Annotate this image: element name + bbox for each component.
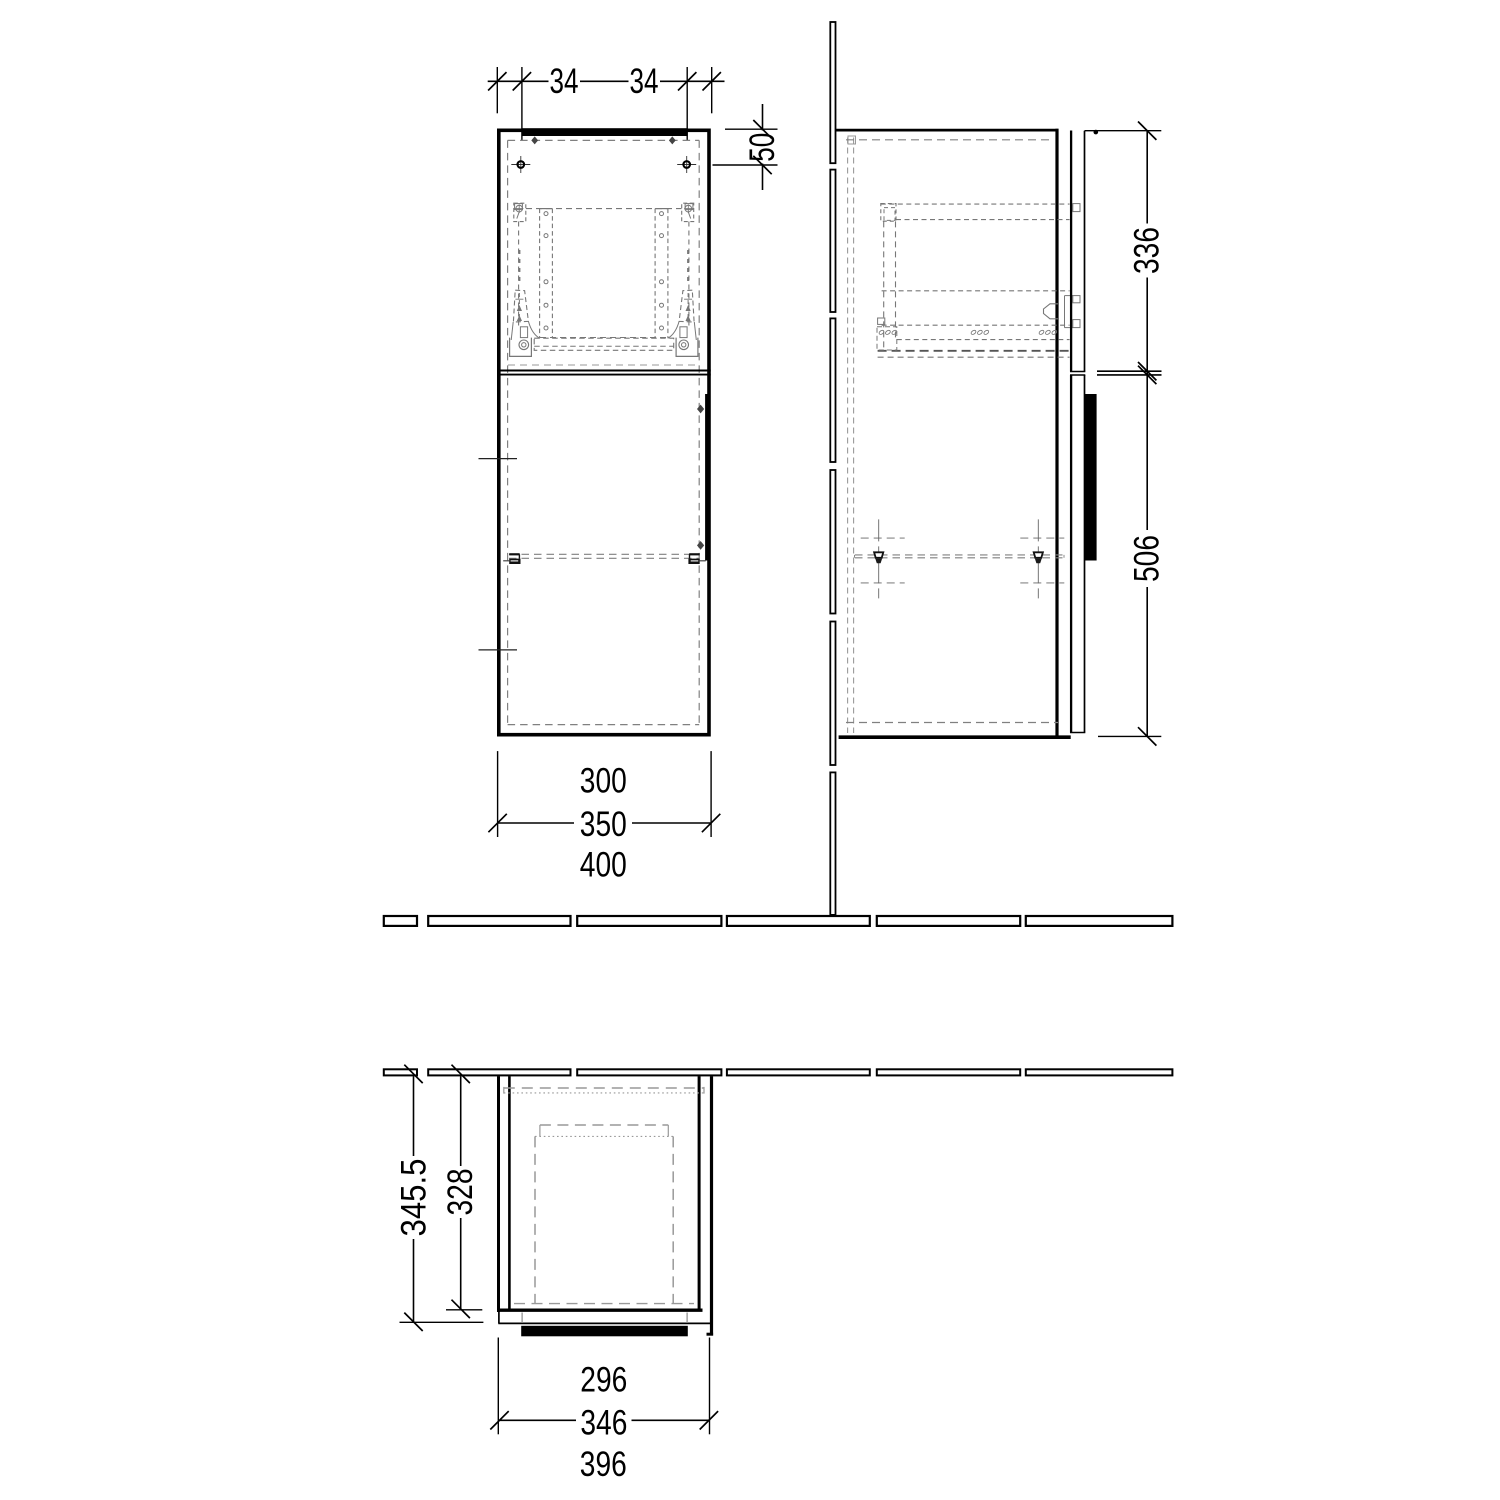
svg-text:345.5: 345.5 [395, 1159, 434, 1237]
svg-text:506: 506 [1127, 535, 1166, 582]
svg-text:34: 34 [550, 62, 579, 101]
svg-text:400: 400 [580, 846, 627, 885]
svg-text:336: 336 [1127, 227, 1166, 274]
svg-text:346: 346 [580, 1404, 627, 1443]
svg-text:296: 296 [580, 1361, 627, 1400]
svg-text:50: 50 [743, 133, 782, 162]
svg-text:328: 328 [441, 1169, 480, 1216]
svg-text:300: 300 [580, 762, 627, 801]
svg-text:350: 350 [580, 805, 627, 844]
svg-text:34: 34 [630, 62, 659, 101]
svg-text:396: 396 [580, 1445, 627, 1484]
